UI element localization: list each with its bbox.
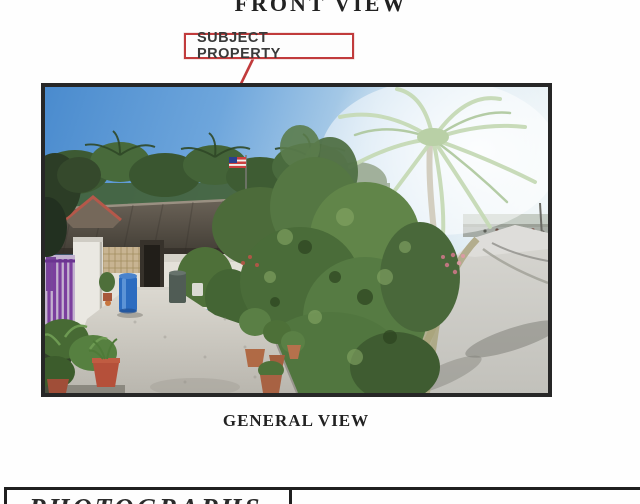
photographs-label: PHOTOGRAPHS [7,490,289,504]
table-header-cell: PHOTOGRAPHS [7,490,289,504]
report-page: FRONT VIEW SUBJECT PROPERTY [0,0,640,504]
table-column-divider [289,487,292,504]
front-view-caption: FRONT VIEW [201,0,441,17]
porch-door [140,240,164,290]
subject-property-callout: SUBJECT PROPERTY [184,33,354,59]
general-view-caption: GENERAL VIEW [176,411,416,431]
property-photo [45,87,548,393]
subject-property-label: SUBJECT PROPERTY [197,30,352,62]
photo-frame [41,83,552,397]
